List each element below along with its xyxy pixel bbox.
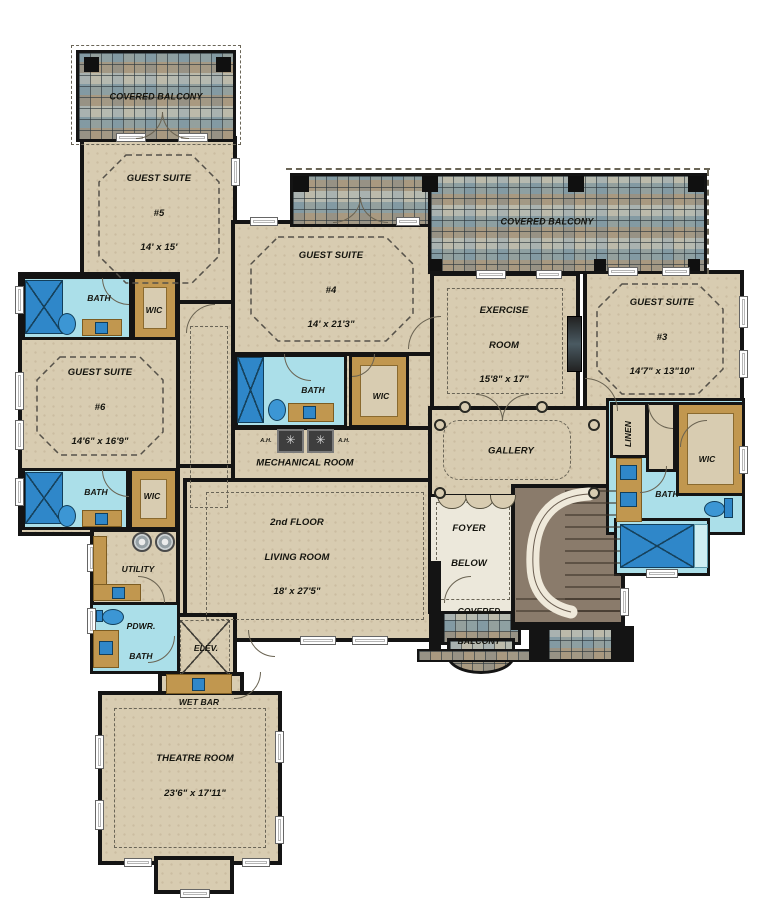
sink <box>303 406 316 419</box>
label-powder-bath: PDWR. BATH <box>127 601 156 681</box>
label-air-handler: A.H. <box>260 438 271 444</box>
column <box>536 401 548 413</box>
label-theatre-room: THEATRE ROOM 23'6" x 17'11" <box>156 730 234 822</box>
label-exercise-room: EXERCISE ROOM 15'8" x 17" <box>479 282 528 409</box>
washer <box>132 532 152 552</box>
room-mechanical <box>231 426 443 484</box>
balcony-railing <box>286 168 710 170</box>
column <box>434 487 446 499</box>
window <box>739 446 748 474</box>
label-bath-gs4: BATH <box>301 385 324 395</box>
window <box>275 731 284 763</box>
stair-porch-tile <box>546 626 614 662</box>
label-guest-suite-5: GUEST SUITE #5 14' x 15' <box>127 150 191 277</box>
window <box>739 296 748 328</box>
label-bath-gs3: BATH <box>655 489 678 499</box>
toilet <box>102 609 124 625</box>
label-covered-balcony-bottom: COVERED BALCONY <box>458 586 501 666</box>
balcony-post <box>594 259 606 271</box>
window <box>242 858 270 867</box>
column <box>459 401 471 413</box>
label-air-handler: A.H. <box>338 438 349 444</box>
balcony-post <box>430 259 442 271</box>
window <box>15 478 24 506</box>
window <box>352 636 388 645</box>
label-covered-balcony-tr: COVERED BALCONY <box>500 216 593 228</box>
door-swing <box>248 630 275 657</box>
label-mechanical-room: MECHANICAL ROOM <box>256 457 353 469</box>
dryer <box>155 532 175 552</box>
toilet <box>58 505 76 527</box>
label-wic-gs5: WIC <box>146 305 163 315</box>
label-elevator: ELEV. <box>194 643 218 653</box>
sink <box>112 587 125 599</box>
label-bath-gs6: BATH <box>84 487 107 497</box>
window <box>180 889 210 898</box>
shower <box>620 524 694 568</box>
tv-screen <box>567 316 582 372</box>
balcony-post <box>84 57 99 72</box>
label-wet-bar: WET BAR <box>179 697 219 707</box>
label-wic-gs4: WIC <box>373 391 390 401</box>
sink <box>192 678 205 691</box>
sink <box>95 513 108 525</box>
toilet <box>58 313 76 335</box>
window <box>739 350 748 378</box>
window <box>124 858 152 867</box>
toilet-tank <box>724 498 733 518</box>
window <box>536 270 562 279</box>
window <box>95 735 104 769</box>
label-wic-gs6: WIC <box>144 491 161 501</box>
window <box>95 800 104 830</box>
stair-curve-rail <box>511 484 625 630</box>
wic-guest-3 <box>676 402 745 496</box>
window <box>275 816 284 844</box>
column <box>588 487 600 499</box>
toilet <box>268 399 286 421</box>
label-guest-suite-4: GUEST SUITE #4 14' x 21'3" <box>299 227 363 354</box>
label-linen: LINEN <box>623 421 633 447</box>
label-bath-gs5: BATH <box>87 293 110 303</box>
sink <box>95 322 108 334</box>
balcony-post <box>568 176 584 192</box>
label-guest-suite-3: GUEST SUITE #3 14'7" x 13"10" <box>630 274 695 401</box>
label-wic-gs3: WIC <box>699 454 716 464</box>
window <box>646 569 678 578</box>
balcony-railing <box>707 170 709 274</box>
balcony-post <box>422 176 438 192</box>
window <box>476 270 506 279</box>
wall <box>614 626 634 662</box>
window <box>300 636 336 645</box>
window <box>15 420 24 450</box>
window <box>15 372 24 410</box>
floor-plan: ✳ ✳ <box>0 0 760 917</box>
air-handler-unit: ✳ <box>307 429 334 453</box>
sink <box>620 465 637 480</box>
balcony-post <box>688 176 704 192</box>
column <box>588 419 600 431</box>
label-foyer-below: FOYER BELOW <box>451 500 487 592</box>
label-living-room: 2nd FLOOR LIVING ROOM 18' x 27'5" <box>265 494 330 621</box>
label-utility: UTILITY <box>122 564 155 574</box>
window <box>620 588 629 616</box>
balcony-post <box>293 176 309 192</box>
window <box>396 217 420 226</box>
label-gallery: GALLERY <box>488 445 534 457</box>
shower <box>237 357 264 423</box>
wall <box>429 561 441 651</box>
wall <box>529 624 546 662</box>
hall-runner-rug <box>190 326 228 508</box>
label-guest-suite-6: GUEST SUITE #6 14'6" x 16'9" <box>68 344 132 471</box>
window <box>15 286 24 314</box>
air-handler-unit: ✳ <box>277 429 304 453</box>
sink <box>99 641 113 655</box>
sink <box>620 492 637 507</box>
label-covered-balcony-tl: COVERED BALCONY <box>109 91 202 103</box>
window <box>231 158 240 186</box>
balcony-post <box>216 57 231 72</box>
shower-bench <box>694 524 708 568</box>
fan-icon: ✳ <box>315 433 325 447</box>
window <box>250 217 278 226</box>
fan-icon: ✳ <box>285 433 295 447</box>
toilet <box>704 501 725 517</box>
column <box>434 419 446 431</box>
